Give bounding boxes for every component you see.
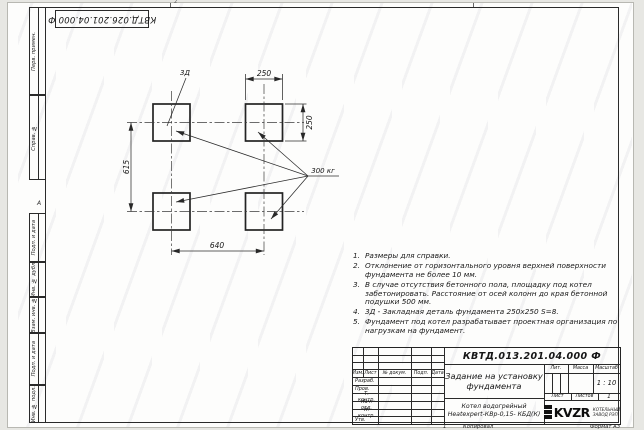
product-name-line2: Heatexpert-КВр-0,15- КБД(К): [448, 411, 541, 419]
col-data: Дата: [431, 369, 444, 377]
note-number: 1.: [350, 252, 365, 261]
sheets-value: 1: [598, 393, 620, 400]
scale-value: 1 : 10: [593, 373, 620, 393]
dim-640-bottom: 640: [210, 241, 225, 250]
drawing-title: Задание на установку фундамента: [444, 364, 544, 398]
footer-copied-label: Копировал: [463, 424, 493, 430]
col-izm: Изм.: [353, 369, 363, 377]
note-text: Фундамент под котел разрабатывает проект…: [365, 318, 618, 336]
col-list: Лист: [363, 369, 378, 377]
title-block: КВТД.013.201.04.000 Ф Задание на установ…: [352, 347, 621, 425]
dimension-lines: [131, 74, 339, 251]
footer-sheet-number: 1: [443, 424, 446, 430]
sheets-label: Листов: [571, 393, 598, 400]
footer-format-label: Формат А3: [590, 424, 620, 430]
note-text: В случае отсутствия бетонного пола, площ…: [365, 281, 618, 308]
note-item: 4. 3Д - Закладная деталь фундамента 250х…: [350, 308, 618, 317]
product-name: Котел водогрейный Heatexpert-КВр-0,15- К…: [444, 398, 544, 424]
mass-label: Масса: [568, 364, 593, 373]
foundation-plates: [153, 104, 283, 230]
col-podp: Подп.: [411, 369, 431, 377]
note-text: Отклонение от горизонтального уровня вер…: [365, 262, 618, 280]
load-label-300kg: 300 кг: [311, 167, 335, 175]
drawing-title-line1: Задание на установку: [445, 371, 543, 381]
note-item: 5. Фундамент под котел разрабатывает про…: [350, 318, 618, 336]
drawing-title-line2: фундамента: [467, 381, 522, 391]
lit-label: Лит.: [544, 364, 568, 373]
note-item: 3. В случае отсутствия бетонного пола, п…: [350, 281, 618, 308]
kvzr-logo-caption: КОТЕЛЬНЫЙ ЗАВОД РЭП: [593, 407, 620, 417]
note-number: 2.: [350, 262, 365, 280]
dim-615-left: 615: [122, 160, 131, 175]
company-logo: KVZR КОТЕЛЬНЫЙ ЗАВОД РЭП: [544, 400, 620, 424]
note-number: 5.: [350, 318, 365, 336]
note-item: 1. Размеры для справки.: [350, 252, 618, 261]
note-text: 3Д - Закладная деталь фундамента 250х250…: [365, 308, 618, 317]
kvzr-logo-text: KVZR: [554, 405, 590, 420]
doc-number: КВТД.013.201.04.000 Ф: [444, 348, 620, 364]
scale-label: Масштаб: [593, 364, 620, 373]
product-name-line1: Котел водогрейный: [462, 403, 527, 411]
note-number: 4.: [350, 308, 365, 317]
note-text: Размеры для справки.: [365, 252, 618, 261]
dim-250-top: 250: [257, 69, 272, 78]
sheet-label: Лист: [544, 393, 571, 400]
notes-list: 1. Размеры для справки. 2. Отклонение от…: [350, 252, 618, 337]
col-dokum: № докум.: [378, 369, 411, 377]
note-number: 3.: [350, 281, 365, 308]
dim-250-right: 250: [305, 115, 314, 130]
row-utv: Утв.: [353, 416, 378, 424]
note-item: 2. Отклонение от горизонтального уровня …: [350, 262, 618, 280]
kvzr-logo-icon: [544, 405, 552, 419]
row-razrab: Разраб.: [353, 377, 378, 385]
detail-label-3d: 3Д: [180, 69, 190, 77]
row-nkontr: Н. контр.: [353, 409, 378, 416]
